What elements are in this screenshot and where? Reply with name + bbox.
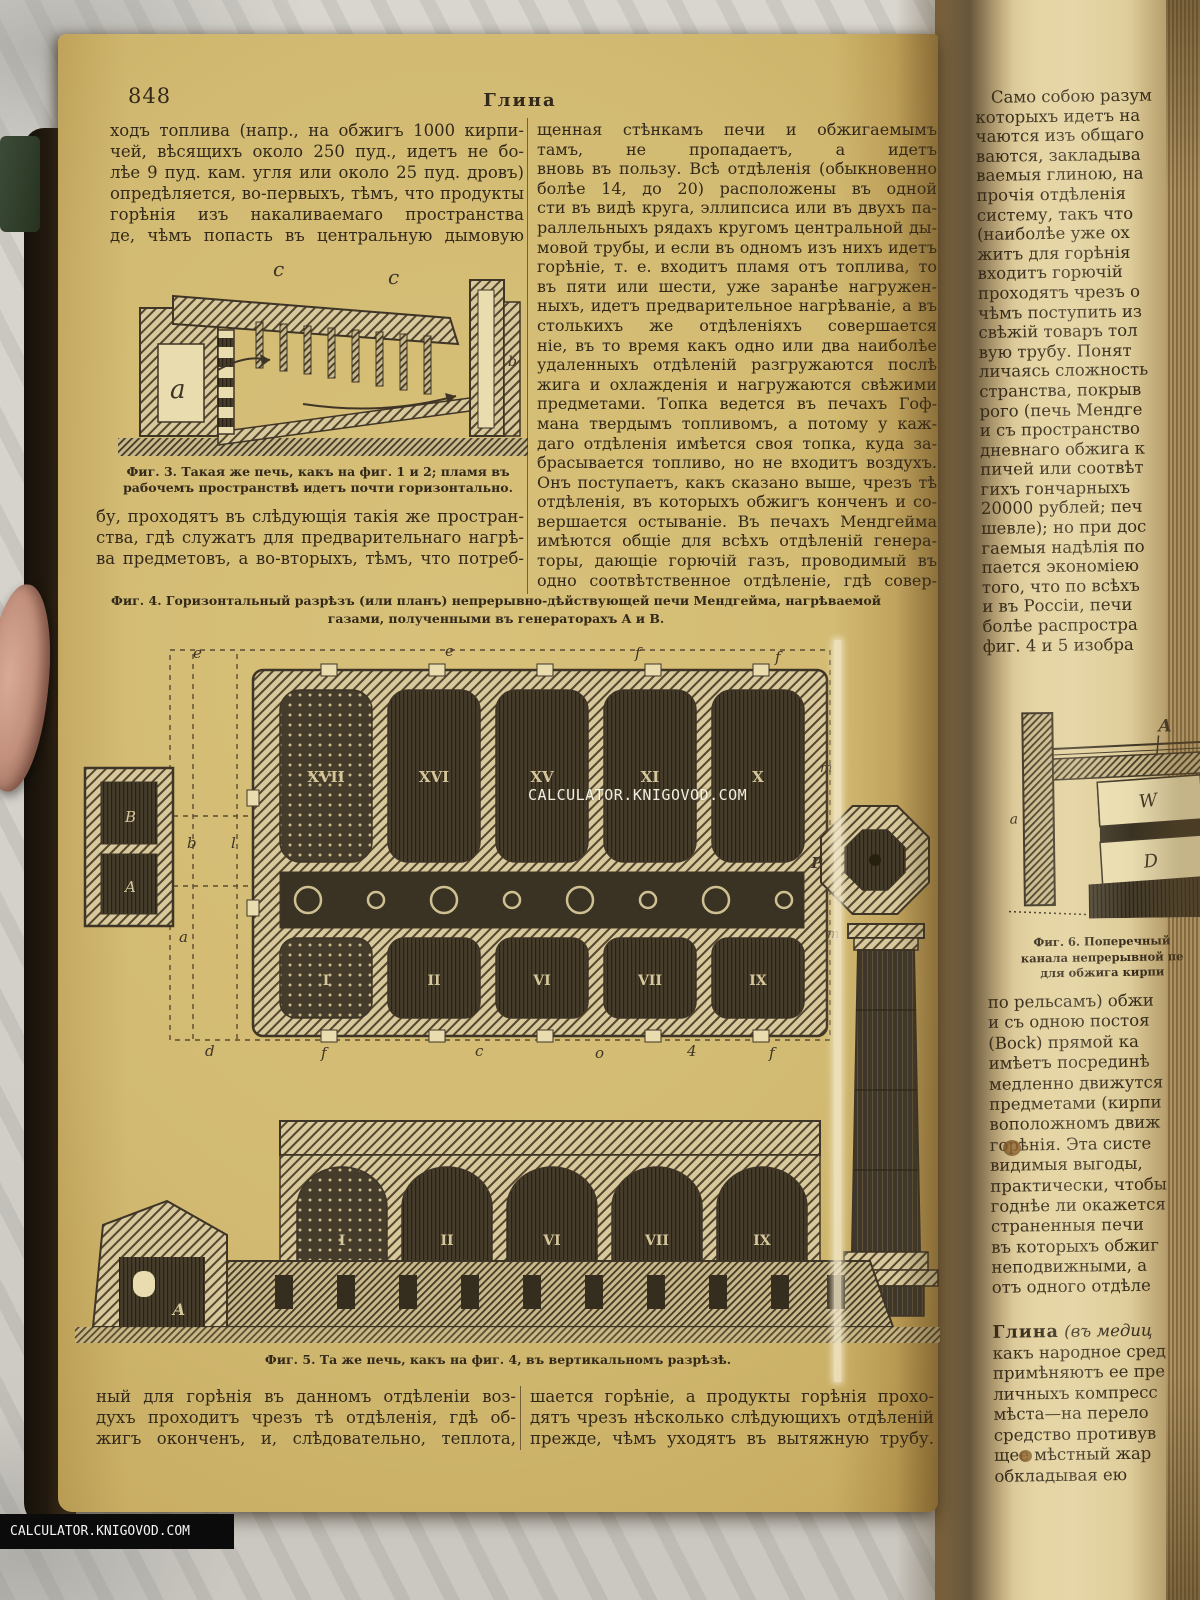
text-line: ходъ топлива (напр., на обжигъ 1000 кирп… — [110, 120, 524, 141]
text-line: шается горѣніе, а продукты горѣнія прохо… — [530, 1386, 934, 1407]
text-line: прежде, чѣмъ уходятъ въ вытяжную трубу. — [530, 1428, 934, 1449]
text-line: мѣста—на перело — [993, 1401, 1200, 1425]
text-line: дятъ чрезъ нѣсколько слѣдующихъ отдѣлені… — [530, 1407, 934, 1428]
text-line: предметами. Топка ведется въ печахъ Гоф- — [537, 394, 937, 414]
text-line: вновь въ пользу. Всѣ отдѣленія (обыкнове… — [537, 159, 937, 179]
text-line: сти въ видѣ круга, эллипсиса или въ двух… — [537, 198, 937, 218]
text-line: даго отдѣленія имѣется своя топка, куда … — [537, 434, 937, 454]
text-line: ва предметовъ, а во-вторыхъ, тѣмъ, что п… — [96, 548, 524, 569]
fig4-label-c: c — [475, 1042, 484, 1060]
text-line: годнѣе ли окажется — [990, 1193, 1200, 1217]
text-line: горѣнія. Эта систе — [990, 1132, 1200, 1156]
fig4-label-p: P — [810, 854, 823, 872]
text-line: неподвижными, а — [991, 1255, 1200, 1279]
fig4-label-f2: f — [774, 648, 783, 666]
book-gutter-shadow — [896, 0, 1014, 1600]
figure-4-kiln-plan: B A b l a e e f f m m P d f c o 4 f XVII — [75, 640, 940, 1065]
fig4-chamber-numeral: I — [323, 973, 330, 989]
text-line: примѣняютъ ее пре — [993, 1360, 1200, 1384]
fig4-label-b: b — [187, 834, 197, 852]
text-line: столькихъ же отдѣленіяхъ совершается охл… — [537, 316, 937, 336]
text-line: имѣются общіе для всѣхъ отдѣленій генера… — [537, 531, 937, 551]
entry-first-line: Глина (въ медиц — [992, 1319, 1200, 1343]
text-line: имѣетъ посрединѣ — [988, 1051, 1200, 1075]
fig4-label-e1: e — [193, 644, 202, 662]
text-line: рабочемъ пространствѣ идетъ почти горизо… — [98, 480, 538, 496]
fig3-drawing — [118, 280, 528, 456]
text-line: въ которыхъ обжиг — [991, 1234, 1200, 1258]
text-line: видимыя выгоды, — [990, 1153, 1200, 1177]
page-fold-crease — [834, 640, 841, 1382]
text-line: мовой трубы, и если въ одномъ изъ нихъ и… — [537, 238, 937, 258]
text-line: и съ одною постоя — [988, 1010, 1200, 1034]
text-line: жигъ оконченъ, и, слѣдовательно, теплота… — [96, 1428, 516, 1449]
text-line: Фиг. 4. Горизонтальный разрѣзъ (или план… — [68, 592, 924, 610]
text-line: болѣе 14, до 20) расположены въ одной пл… — [537, 179, 937, 199]
fig4-label-f4: f — [768, 1044, 777, 1062]
fig4-label-e2: e — [445, 642, 454, 660]
entry-qualifier: (въ медиц — [1059, 1321, 1153, 1341]
fig4-label-f1: f — [634, 644, 643, 662]
text-line: одно соотвѣтственное отдѣленіе, гдѣ сове… — [537, 571, 937, 591]
figure-3-kiln-section: c c a b — [118, 246, 528, 458]
fig4-label-a: a — [179, 928, 188, 946]
text-line: ства, гдѣ служатъ для предварительнаго н… — [96, 527, 524, 548]
left-page: 848 Глина ходъ топлива (напр., на обжигъ… — [58, 34, 938, 1512]
fig6-drawing — [1006, 711, 1200, 920]
text-line: ный для горѣнія въ данномъ отдѣленіи воз… — [96, 1386, 516, 1407]
text-line: бу, проходятъ въ слѣдующія такія же прос… — [96, 506, 524, 527]
fig5-label-a: A — [171, 1300, 185, 1319]
running-title: Глина — [110, 90, 930, 111]
text-line: горѣніе, т. е. входитъ пламя отъ топлива… — [537, 257, 937, 277]
fig5-chamber-numeral: IX — [753, 1233, 771, 1249]
fig3-label-c2: c — [388, 265, 399, 289]
fig4-label-4: 4 — [686, 1042, 697, 1060]
text-line: вершается остываніе. Въ печахъ Мендгейма — [537, 512, 937, 532]
text-line: удаленныхъ отдѣленій разгружаются послѣ … — [537, 355, 937, 375]
photo-scene: Само собою разумкоторыхъ идетъ начаются … — [0, 0, 1200, 1600]
fig4-label-generator-b: B — [124, 808, 136, 826]
text-line: практически, чтобы — [990, 1173, 1200, 1197]
text-line: брасывается топливо, но не входитъ возду… — [537, 453, 937, 473]
column-divider — [527, 118, 528, 594]
bottom-column-divider — [520, 1386, 521, 1450]
text-line: страненныя печи — [991, 1214, 1200, 1238]
text-line: воположномъ движ — [989, 1112, 1200, 1136]
fig4-label-o: o — [595, 1044, 604, 1062]
figure-5-caption: Фиг. 5. Та же печь, какъ на фиг. 4, въ в… — [118, 1352, 878, 1367]
text-line: канала непрерывной пе — [987, 948, 1200, 967]
fig4-generators — [85, 768, 173, 926]
fig6-label-d: D — [1142, 850, 1160, 873]
watermark-bottom-left: CALCULATOR.KNIGOVOD.COM — [0, 1514, 234, 1549]
text-line: газами, полученными въ генераторахъ A и … — [68, 610, 924, 628]
text-line: Фиг. 3. Такая же печь, какъ на фиг. 1 и … — [98, 464, 538, 480]
text-line: тамъ, не пропадаетъ, а идетъ (регенериру… — [537, 140, 937, 160]
text-line: мана твердымъ топливомъ, а потому у каж- — [537, 414, 937, 434]
text-line: личныхъ компресс — [993, 1381, 1200, 1405]
text-line: лѣе 9 пуд. кам. угля или около 25 пуд. д… — [110, 162, 524, 183]
fig6-label-a-top: A — [1156, 716, 1171, 736]
text-line: въ пяти или шести, уже заранѣе нагружен- — [537, 277, 937, 297]
fig4-chamber-numeral: IX — [749, 973, 767, 989]
text-line: какъ народное сред — [993, 1340, 1200, 1364]
fig4-label-generator-a: A — [123, 878, 136, 896]
figure-6-caption: Фиг. 6. Поперечныйканала непрерывной пед… — [987, 933, 1200, 983]
text-line: ніе, въ то время какъ одно или два наибо… — [537, 336, 937, 356]
figure-3-caption: Фиг. 3. Такая же печь, какъ на фиг. 1 и … — [98, 464, 538, 496]
text-line: жига и охлажденія и нагружаются свѣжими — [537, 375, 937, 395]
watermark-center: CALCULATOR.KNIGOVOD.COM — [528, 786, 747, 804]
text-line: щенная стѣнкамъ печи и обжигаемымъ предм… — [537, 120, 937, 140]
fig3-label-a: a — [170, 375, 186, 405]
fig3-label-c1: c — [273, 257, 284, 281]
text-line: Онъ поступаетъ, какъ сказано выше, чрезъ… — [537, 473, 937, 493]
column2-paragraph: щенная стѣнкамъ печи и обжигаемымъ предм… — [537, 120, 937, 590]
fig3-label-b: b — [508, 354, 517, 370]
bottom-column2-paragraph: шается горѣніе, а продукты горѣнія прохо… — [530, 1386, 934, 1449]
fig4-label-f3: f — [320, 1044, 329, 1062]
fig4-chamber-numeral: X — [752, 768, 764, 786]
text-line: ныхъ, идетъ предварительное нагрѣваніе, … — [537, 296, 937, 316]
text-line: (Bock) прямой ка — [988, 1030, 1200, 1054]
column1-top-paragraph: ходъ топлива (напр., на обжигъ 1000 кирп… — [110, 120, 524, 246]
text-line: фиг. 4 и 5 изобра — [983, 633, 1200, 656]
fig5-chamber-numeral: I — [339, 1233, 346, 1249]
text-line: опредѣляется, во-первыхъ, тѣмъ, что прод… — [110, 183, 524, 204]
figure-4-caption: Фиг. 4. Горизонтальный разрѣзъ (или план… — [68, 592, 924, 627]
foxing-spot — [1019, 1450, 1032, 1462]
fig4-chamber-numeral: VII — [637, 973, 662, 989]
fig5-chamber-numeral: II — [440, 1233, 453, 1249]
text-line: горѣнія изъ накаливаемаго пространства п… — [110, 204, 524, 225]
fig5-drawing — [75, 1121, 940, 1343]
text-line: предметами (кирпи — [989, 1091, 1200, 1115]
fig4-label-m1: m — [820, 761, 832, 776]
figure-5-kiln-vertical-section: I II VI VII IX A — [75, 1075, 940, 1347]
text-line: отдѣленія, въ которыхъ обжигъ конченъ и … — [537, 492, 937, 512]
text-line: раллельныхъ рядахъ кругомъ центральной д… — [537, 218, 937, 238]
fig4-chamber-numeral: XI — [641, 768, 660, 786]
text-line: по рельсамъ) обжи — [988, 989, 1200, 1013]
text-line: чей, вѣсящихъ около 250 пуд., идетъ не б… — [110, 141, 524, 162]
text-line: отъ одного отдѣле — [992, 1275, 1200, 1299]
fig5-chamber-numeral: VII — [644, 1233, 669, 1249]
fig4-chamber-numeral: VI — [532, 973, 550, 989]
figure-6-kiln-cross-section: A W D a — [1004, 697, 1200, 920]
text-line: духъ проходитъ чрезъ тѣ отдѣленія, гдѣ о… — [96, 1407, 516, 1428]
fig4-chamber-numeral: XV — [530, 768, 554, 786]
column1-bottom-paragraph: бу, проходятъ въ слѣдующія такія же прос… — [96, 506, 524, 569]
text-line: де, чѣмъ попасть въ центральную дымовую … — [110, 225, 524, 246]
fig4-chamber-numeral: XVI — [419, 768, 449, 786]
bottom-column1-paragraph: ный для горѣнія въ данномъ отдѣленіи воз… — [96, 1386, 516, 1449]
text-line: для обжига кирпи — [987, 964, 1200, 983]
text-line: медленно движутся — [989, 1071, 1200, 1095]
fig4-chamber-numeral: XVII — [307, 768, 344, 786]
entry-body-lines: какъ народное средпримѣняютъ ее преличны… — [993, 1340, 1200, 1487]
fig4-label-d: d — [205, 1042, 215, 1060]
book-spine-sliver — [0, 136, 40, 232]
text-line: средство противув — [994, 1422, 1200, 1446]
fig4-label-l: l — [231, 834, 236, 852]
text-line: обкладывая ею — [994, 1463, 1200, 1487]
fig4-chamber-numeral: II — [427, 973, 440, 989]
fig5-chamber-numeral: VI — [542, 1233, 560, 1249]
text-line: торы, дающіе горючій газъ, проводимый въ — [537, 551, 937, 571]
